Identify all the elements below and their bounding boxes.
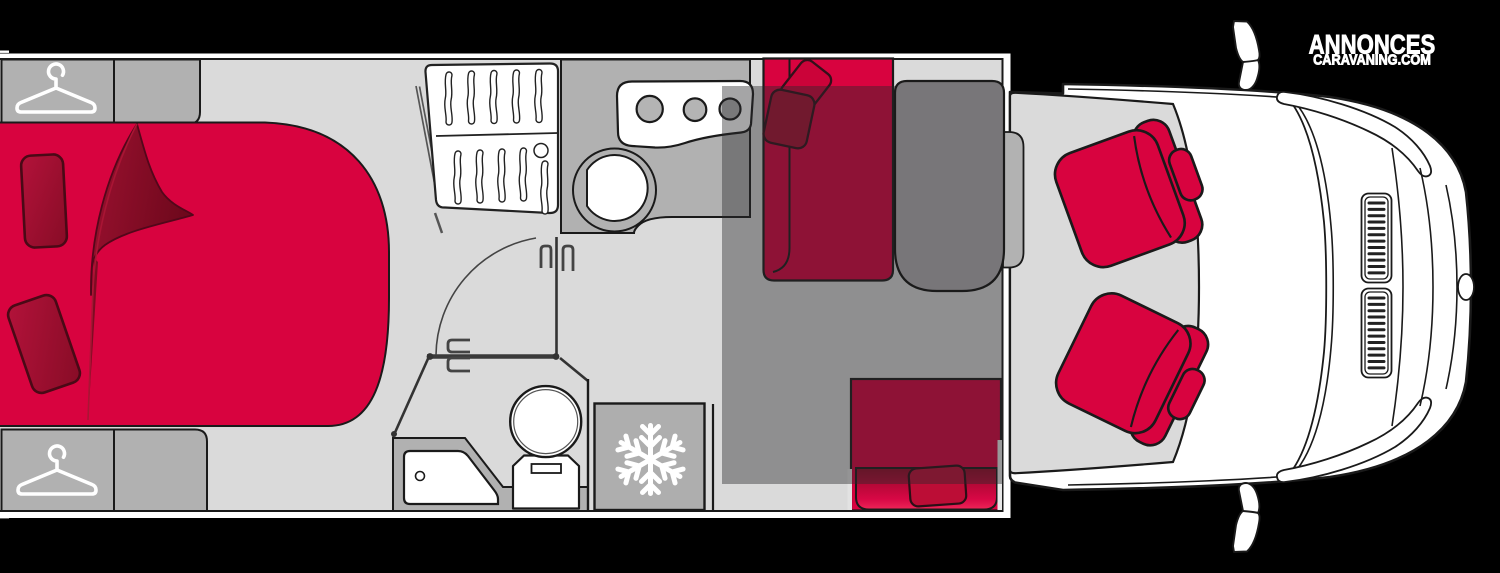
svg-text:CARAVANING.COM: CARAVANING.COM <box>1313 52 1431 68</box>
